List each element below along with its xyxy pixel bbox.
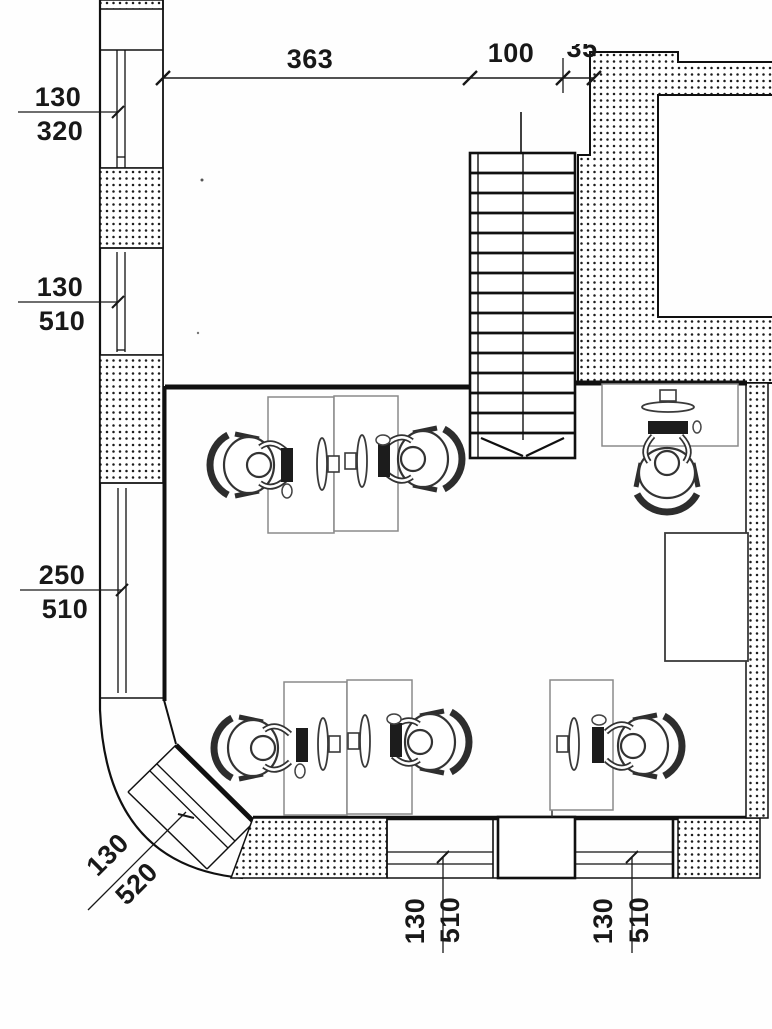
scan-speckle <box>197 332 199 334</box>
keyboard <box>378 443 390 477</box>
cabinet <box>665 533 748 661</box>
dimension-left-low: 250 510 <box>20 560 128 624</box>
keyboard <box>592 727 604 763</box>
dim-label: 130 <box>37 272 84 302</box>
wall-pier-hatch-2 <box>100 355 163 483</box>
right-wall-strip <box>746 383 768 818</box>
scan-speckle <box>201 179 204 182</box>
bottom-wall-pier <box>498 817 575 878</box>
dimension-left-mid: 130 510 <box>18 272 124 336</box>
keyboard <box>390 723 402 757</box>
window-left-top <box>100 50 163 168</box>
mouse <box>693 421 701 433</box>
dim-label: 510 <box>42 594 89 624</box>
dim-label: 320 <box>37 116 84 146</box>
workstation-group-top-right <box>602 384 738 512</box>
dim-label: 130 <box>35 82 82 112</box>
mouse <box>387 714 401 724</box>
keyboard <box>648 421 688 434</box>
mouse <box>282 484 292 498</box>
dimension-left-top: 130 320 <box>18 82 124 146</box>
dim-label: 510 <box>624 897 654 944</box>
dimension-bottom-right: 130 510 <box>588 851 654 953</box>
wall-hatch-top-stub <box>100 0 163 9</box>
left-wall <box>100 0 165 710</box>
workstation-group-top-left <box>210 396 462 533</box>
mouse <box>592 715 606 725</box>
bottom-wall-hatch-right <box>678 818 760 878</box>
person-on-chair <box>393 711 469 773</box>
person-on-chair <box>636 436 698 512</box>
dim-label-100: 100 <box>488 38 535 68</box>
person-on-chair <box>210 434 286 496</box>
bottom-wall-hatch-left <box>231 818 387 878</box>
window-bottom-right <box>575 818 678 878</box>
person-on-chair <box>606 715 682 777</box>
staircase <box>470 112 575 458</box>
dim-label: 130 <box>400 898 430 945</box>
mouse <box>295 764 305 778</box>
workstation-group-bottom-right <box>550 680 682 810</box>
mouse <box>376 435 390 445</box>
dimension-bottom-left: 130 510 <box>400 851 465 953</box>
floor-plan-svg: 363 100 35 130 320 130 510 250 510 130 5… <box>0 0 772 1029</box>
floor-plan-page: 363 100 35 130 320 130 510 250 510 130 5… <box>0 0 772 1029</box>
keyboard <box>281 448 293 482</box>
dim-label: 510 <box>435 897 465 944</box>
workstation-group-bottom-left <box>214 680 469 815</box>
dim-label: 510 <box>39 306 86 336</box>
top-right-wall-mass <box>578 52 772 383</box>
keyboard <box>296 728 308 762</box>
person-on-chair <box>214 717 290 779</box>
dim-label: 130 <box>588 898 618 945</box>
wall-pier-hatch-1 <box>100 168 163 248</box>
dim-label-cut: 35 <box>566 33 597 63</box>
dim-label-363: 363 <box>287 44 334 74</box>
person-on-chair <box>386 428 462 490</box>
dim-label: 250 <box>39 560 86 590</box>
